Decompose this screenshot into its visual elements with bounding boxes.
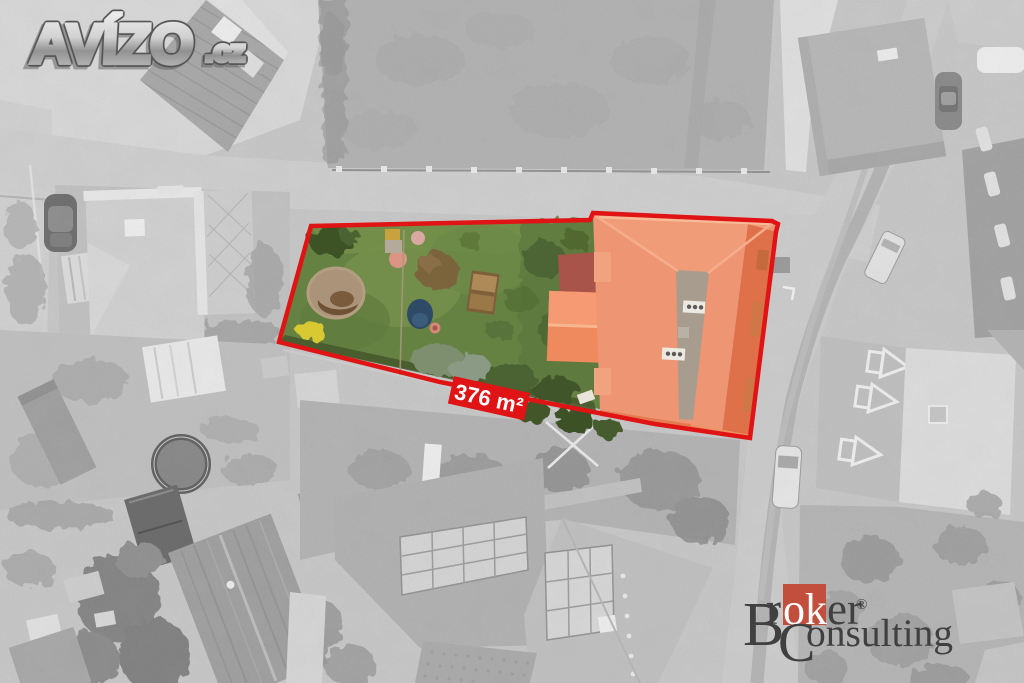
svg-text:AVÍZO: AVÍZO — [29, 12, 194, 75]
svg-text:.cz: .cz — [204, 35, 246, 68]
svg-text:onsulting: onsulting — [806, 611, 953, 655]
